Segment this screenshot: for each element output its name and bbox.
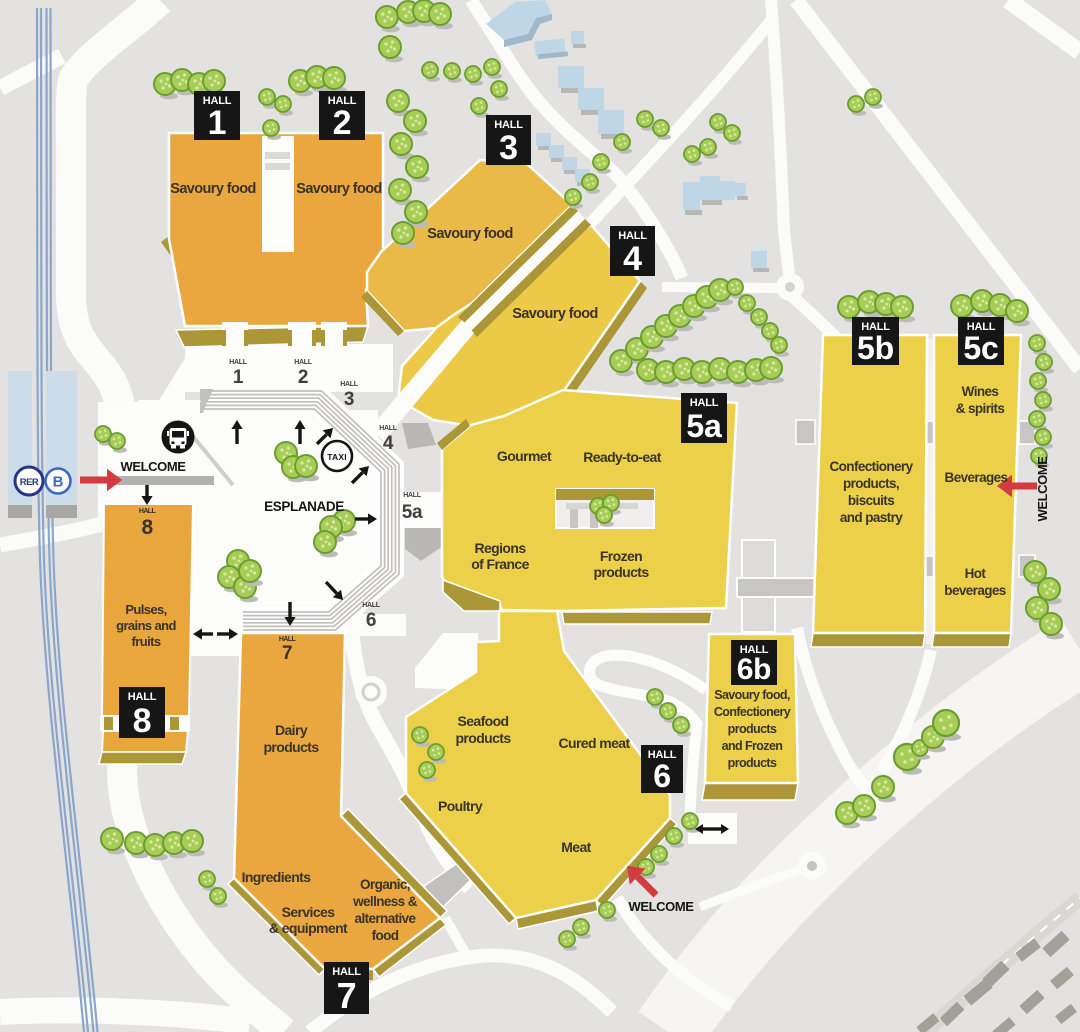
svg-text:products: products [593,564,649,580]
svg-text:6: 6 [366,610,376,631]
svg-text:6b: 6b [737,653,772,686]
svg-text:Beverages: Beverages [945,470,1008,485]
svg-text:5b: 5b [857,330,894,366]
svg-text:HALL: HALL [340,381,358,388]
svg-text:7: 7 [337,975,357,1016]
svg-text:of France: of France [471,556,529,572]
svg-text:Pulses,: Pulses, [125,602,166,617]
svg-text:WELCOME: WELCOME [628,899,694,914]
svg-text:and pastry: and pastry [840,510,903,525]
svg-text:3: 3 [344,389,354,410]
svg-text:HALL: HALL [294,359,312,366]
svg-text:2: 2 [333,104,352,142]
svg-text:Frozen: Frozen [600,548,642,564]
svg-text:HALL: HALL [379,425,397,432]
svg-text:Wines: Wines [962,384,999,399]
svg-text:3: 3 [499,129,518,167]
svg-text:biscuits: biscuits [848,493,894,508]
svg-text:HALL: HALL [362,602,380,609]
svg-text:Gourmet: Gourmet [497,448,552,464]
svg-text:HALL: HALL [229,359,247,366]
svg-text:5c: 5c [963,330,998,366]
svg-text:products: products [263,739,319,755]
svg-text:wellness &: wellness & [352,894,418,909]
svg-text:alternative: alternative [355,911,417,926]
svg-text:ESPLANADE: ESPLANADE [264,499,344,514]
svg-text:products: products [728,756,777,770]
svg-text:Savoury food: Savoury food [427,226,512,242]
svg-text:products: products [455,730,511,746]
svg-text:Seafood: Seafood [457,713,508,729]
svg-text:Savoury food: Savoury food [170,181,255,197]
svg-text:& equipment: & equipment [269,920,348,936]
svg-text:2: 2 [298,367,308,388]
svg-text:RER: RER [20,477,39,488]
svg-text:grains and: grains and [116,618,176,633]
svg-text:Savoury food: Savoury food [296,181,381,197]
svg-text:products,: products, [843,476,899,491]
svg-text:HALL: HALL [279,636,297,643]
svg-text:6: 6 [653,758,671,794]
svg-text:Meat: Meat [561,839,591,855]
svg-text:fruits: fruits [132,634,161,649]
svg-text:Organic,: Organic, [360,877,410,892]
svg-text:& spirits: & spirits [956,401,1005,416]
svg-text:4: 4 [623,240,642,278]
svg-text:1: 1 [233,367,244,388]
svg-text:beverages: beverages [944,583,1005,598]
svg-text:Cured meat: Cured meat [558,735,630,751]
svg-text:Ingredients: Ingredients [242,869,312,885]
svg-text:5a: 5a [686,408,722,444]
svg-text:Savoury food,: Savoury food, [714,688,790,702]
svg-text:7: 7 [282,643,292,664]
svg-text:HALL: HALL [139,508,157,515]
svg-text:8: 8 [133,702,152,740]
svg-text:Services: Services [282,904,336,920]
svg-text:Hot: Hot [965,566,987,581]
svg-text:5a: 5a [402,502,423,523]
svg-text:Regions: Regions [474,540,526,556]
svg-text:WELCOME: WELCOME [120,459,186,474]
svg-text:TAXI: TAXI [327,452,347,462]
svg-text:1: 1 [208,104,227,142]
svg-text:8: 8 [141,516,153,539]
svg-text:4: 4 [383,433,394,454]
svg-text:Poultry: Poultry [438,798,483,814]
svg-text:Dairy: Dairy [275,722,308,738]
svg-text:Confectionery: Confectionery [830,459,914,474]
svg-text:Savoury food: Savoury food [512,306,597,322]
svg-text:Confectionery: Confectionery [714,705,791,719]
svg-text:food: food [372,928,399,943]
svg-text:WELCOME: WELCOME [1035,456,1050,522]
svg-text:Ready-to-eat: Ready-to-eat [583,449,662,465]
svg-text:products: products [728,722,777,736]
svg-text:and Frozen: and Frozen [722,739,783,753]
svg-text:B: B [53,474,64,491]
svg-text:HALL: HALL [403,492,421,499]
